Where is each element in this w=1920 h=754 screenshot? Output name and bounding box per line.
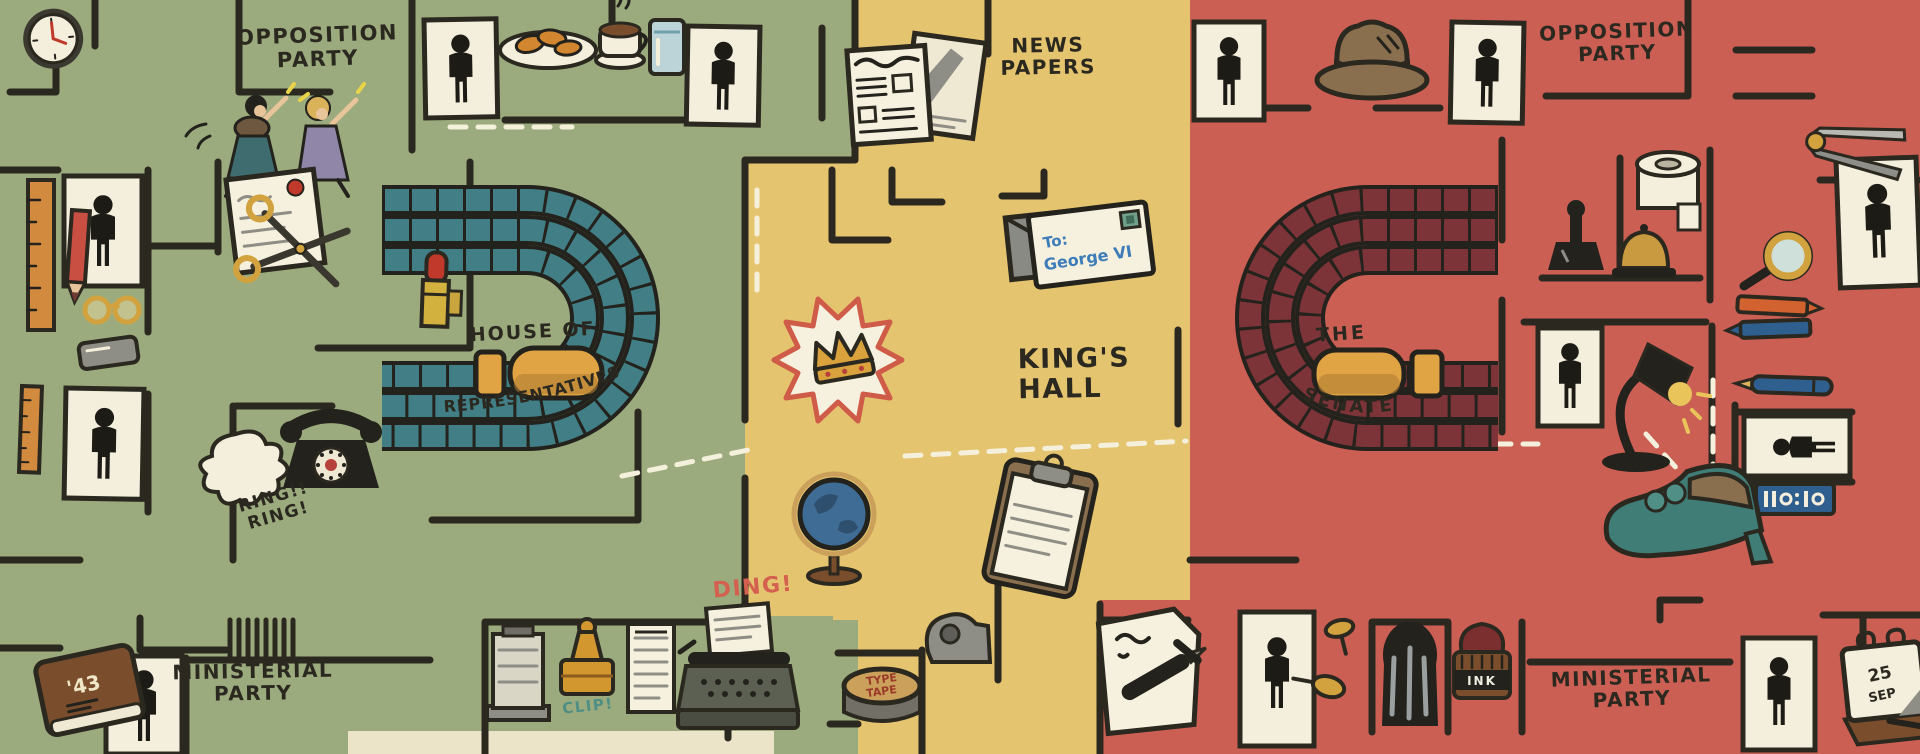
- division-sign-icon: [1756, 484, 1834, 514]
- clipboard-icon: [982, 446, 1100, 598]
- newspapers-icon: [847, 33, 986, 144]
- kings-hall-label: KING'S HALL: [1017, 343, 1168, 406]
- map-drawing: HOUSE OF REPRESENTATIVES THE SENATE: [0, 0, 1920, 754]
- ink-pot-icon: INK: [1454, 624, 1510, 698]
- ministerial-left-label: MINISTERIAL PARTY: [148, 658, 359, 706]
- desk-calendar-icon: 25 SEP: [1836, 627, 1920, 745]
- crown-burst-icon: [774, 299, 902, 421]
- news-papers-label: NEWS PAPERS: [988, 33, 1109, 80]
- eraser-icon: [78, 336, 139, 370]
- desk-lamp-icon: [1602, 344, 1710, 472]
- globe-icon: [794, 474, 874, 584]
- wall-clock-icon: [20, 6, 86, 72]
- person-door-sign: [1194, 22, 1264, 120]
- person-door-sign: [1836, 157, 1920, 288]
- opposition-left-label: OPPOSITION PARTY: [224, 21, 411, 74]
- coffee-cup-icon: [596, 0, 646, 68]
- clip-stamp-icon: [561, 619, 613, 694]
- opposition-right-label: OPPOSITION PARTY: [1521, 17, 1712, 68]
- envelope-letter-icon: To: George VI: [1005, 202, 1154, 288]
- croissants-plate-icon: [500, 28, 596, 68]
- ministerial-right-label: MINISTERIAL PARTY: [1523, 662, 1739, 714]
- water-glass-icon: [650, 20, 684, 74]
- rotary-telephone-icon: [280, 416, 382, 488]
- ruler-icon: [19, 386, 42, 473]
- person-door-sign: [1450, 22, 1524, 123]
- heeled-shoe-icon: [1601, 461, 1771, 578]
- person-door-sign: [424, 19, 498, 118]
- blue-pencil-icon: [1735, 375, 1832, 394]
- red-pencil-icon: [66, 210, 90, 303]
- parliament-map: HOUSE OF REPRESENTATIVES THE SENATE: [0, 0, 1920, 754]
- person-door-sign-sideways: [1744, 416, 1850, 476]
- senate-label-top: THE: [1315, 321, 1367, 346]
- person-door-sign: [686, 26, 760, 125]
- person-door-sign: [1743, 638, 1815, 750]
- ribbon-tin-icon: TYPE TAPE: [844, 669, 920, 721]
- memo-sheet-icon: [628, 624, 674, 712]
- ruler-icon: [28, 180, 54, 330]
- ink-label: INK: [1467, 674, 1497, 688]
- card-file-icon: [487, 626, 549, 720]
- fedora-hat-icon: [1317, 22, 1427, 98]
- stairs-icon: [230, 620, 293, 656]
- tape-dispenser-icon: [927, 614, 990, 662]
- reading-glasses-icon: [85, 298, 139, 322]
- crayons-icon: [1726, 296, 1822, 338]
- senate-tables: [1314, 350, 1442, 398]
- ink-well-icon: [1382, 622, 1438, 726]
- letter-and-pen-icon: [1098, 608, 1212, 734]
- date-stamp-icon: [1548, 200, 1604, 270]
- magnifier-icon: [1744, 233, 1811, 286]
- toilet-roll-icon: [1637, 152, 1700, 230]
- person-door-sign: [64, 388, 144, 499]
- person-door-sign: [1538, 328, 1602, 426]
